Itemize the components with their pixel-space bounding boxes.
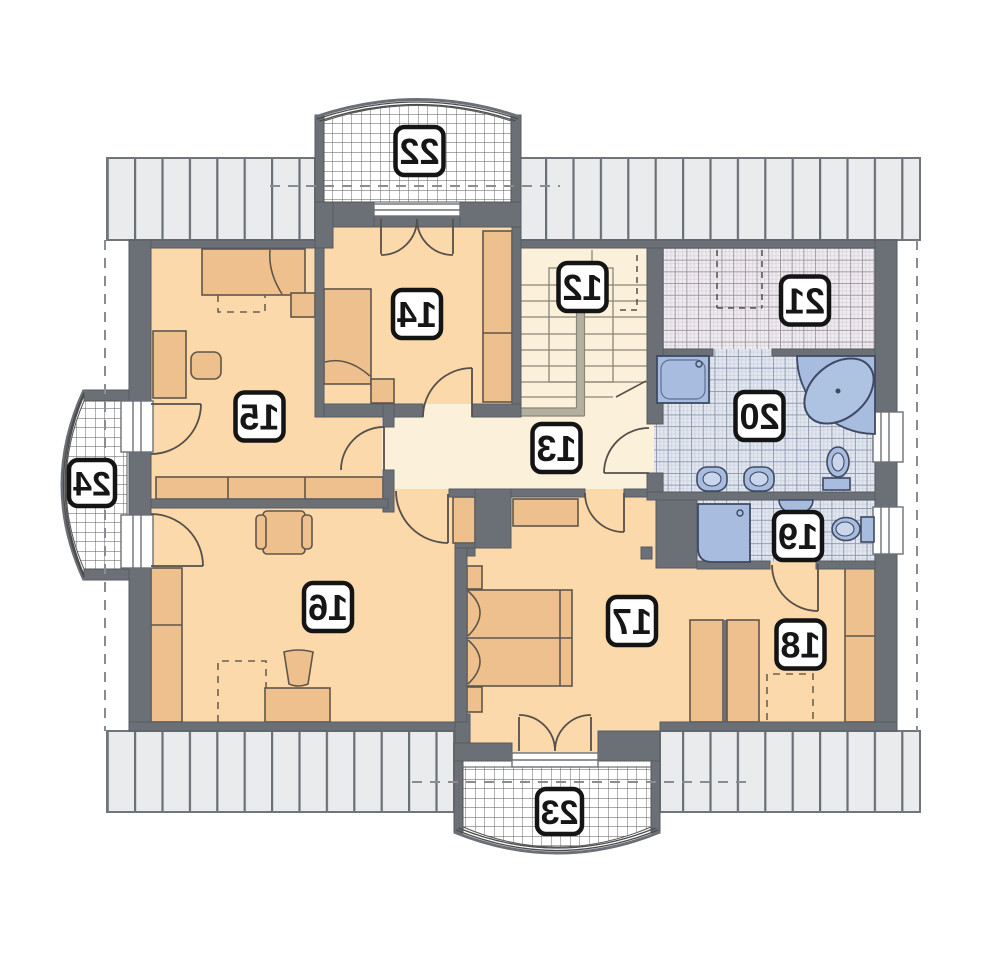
svg-text:20: 20 — [739, 396, 779, 437]
svg-text:23: 23 — [541, 794, 579, 832]
svg-text:22: 22 — [399, 131, 439, 172]
svg-text:13: 13 — [536, 428, 576, 469]
svg-text:14: 14 — [397, 294, 437, 335]
svg-text:21: 21 — [785, 281, 825, 322]
svg-text:12: 12 — [562, 267, 602, 308]
svg-text:19: 19 — [778, 516, 818, 557]
svg-text:17: 17 — [612, 601, 652, 642]
svg-text:15: 15 — [239, 397, 279, 438]
svg-text:16: 16 — [308, 587, 348, 628]
svg-text:24: 24 — [73, 466, 111, 504]
svg-text:18: 18 — [780, 625, 820, 666]
